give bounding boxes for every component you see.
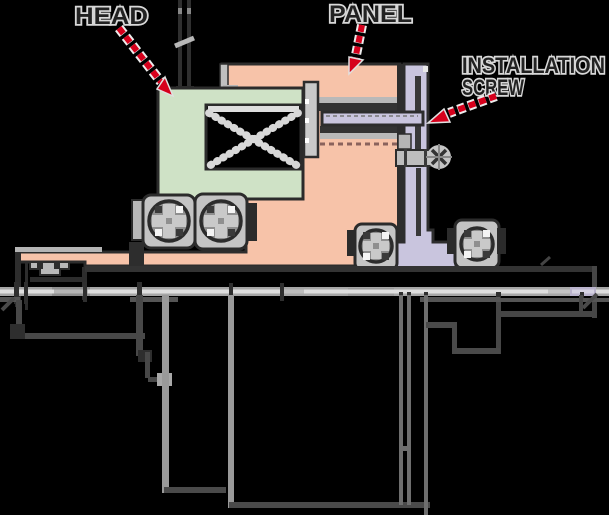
svg-text:HEAD: HEAD [75, 3, 148, 30]
svg-text:PANEL: PANEL [329, 1, 412, 28]
